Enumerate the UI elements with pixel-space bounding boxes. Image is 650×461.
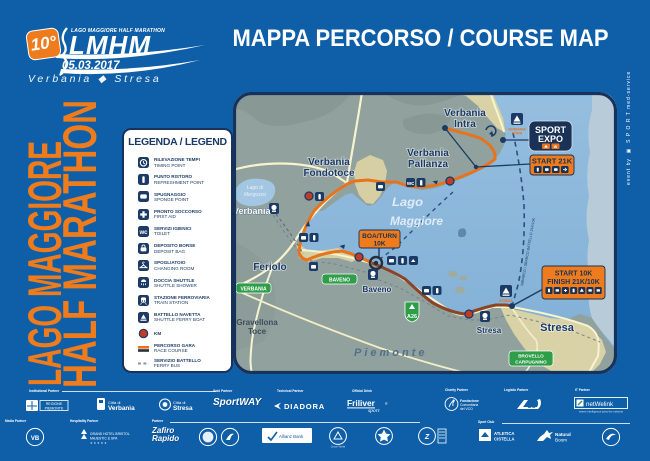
svg-text:START 10K: START 10K — [555, 271, 593, 278]
svg-text:GRAND HOTEL BRISTOL: GRAND HOTEL BRISTOL — [90, 432, 130, 436]
svg-text:Stresa: Stresa — [540, 322, 575, 334]
svg-text:FINISH 21K/10K: FINISH 21K/10K — [547, 279, 600, 286]
svg-text:del VCO: del VCO — [460, 407, 473, 411]
svg-text:Stresa: Stresa — [477, 326, 502, 335]
svg-text:LC: LC — [528, 404, 537, 410]
svg-text:ATLETICA: ATLETICA — [494, 431, 514, 436]
svg-text:Maggiore: Maggiore — [390, 214, 443, 228]
svg-text:★ ★ ★ ★ ★: ★ ★ ★ ★ ★ — [90, 441, 107, 445]
svg-text:Fondotoce: Fondotoce — [303, 168, 355, 179]
svg-text:Toce: Toce — [248, 327, 267, 336]
svg-text:wc: wc — [138, 230, 148, 236]
svg-text:HALF MARATHON: HALF MARATHON — [53, 100, 106, 388]
svg-text:Verbania: Verbania — [233, 206, 272, 216]
svg-text:Z: Z — [424, 434, 430, 441]
svg-text:MAJESTIC & SPA: MAJESTIC & SPA — [90, 437, 118, 441]
svg-text:Gravellona: Gravellona — [236, 318, 278, 327]
svg-text:W: W — [554, 145, 558, 149]
svg-text:Verbania: Verbania — [108, 405, 135, 412]
svg-text:BOA/TURN: BOA/TURN — [362, 233, 397, 240]
svg-text:wc: wc — [406, 181, 414, 187]
svg-text:Natural: Natural — [555, 432, 571, 437]
svg-text:Friliver: Friliver — [347, 398, 376, 408]
svg-text:A26: A26 — [407, 314, 417, 320]
svg-text:sport: sport — [368, 408, 380, 413]
svg-text:Verbania: Verbania — [407, 148, 449, 159]
svg-text:START 21K: START 21K — [532, 157, 573, 166]
svg-text:PIEMONTE: PIEMONTE — [45, 407, 64, 411]
svg-text:DIADORA: DIADORA — [284, 402, 325, 411]
svg-text:Piemonte: Piemonte — [354, 347, 428, 359]
svg-text:Croce Verde: Croce Verde — [331, 444, 346, 448]
svg-text:Verbania: Verbania — [444, 108, 486, 119]
svg-text:netWelink: netWelink — [586, 401, 614, 408]
svg-text:Baveno: Baveno — [363, 285, 392, 294]
svg-text:Lago di: Lago di — [247, 185, 264, 191]
svg-text:Mergozzo: Mergozzo — [244, 192, 266, 198]
svg-text:Boom: Boom — [555, 438, 567, 443]
svg-text:INTRA: INTRA — [512, 132, 523, 136]
svg-text:CISTELLA: CISTELLA — [494, 437, 514, 442]
svg-text:BROVELLO: BROVELLO — [518, 354, 544, 359]
svg-text:EXPO: EXPO — [538, 134, 563, 144]
svg-text:Intra: Intra — [454, 119, 476, 130]
svg-text:10K: 10K — [373, 241, 385, 248]
svg-text:REGIONE: REGIONE — [46, 402, 63, 406]
svg-text:VERBANIA: VERBANIA — [240, 286, 267, 292]
svg-text:Verbania: Verbania — [308, 157, 350, 168]
svg-text:Lago: Lago — [392, 195, 423, 209]
svg-text:Feriolo: Feriolo — [253, 262, 286, 273]
svg-text:®: ® — [385, 402, 388, 406]
svg-text:CARPUGNINO: CARPUGNINO — [515, 360, 547, 365]
svg-text:VB: VB — [31, 436, 40, 442]
svg-text:Pallanza: Pallanza — [408, 159, 448, 170]
svg-text:where intelligence joins the n: where intelligence joins the network — [579, 409, 624, 413]
svg-text:Stresa: Stresa — [173, 405, 193, 412]
svg-text:BAVENO: BAVENO — [329, 277, 350, 283]
svg-text:MAPPA PERCORSO / COURSE MAP: MAPPA PERCORSO / COURSE MAP — [233, 25, 609, 52]
svg-text:Allianz Bank: Allianz Bank — [279, 434, 304, 439]
svg-text:STRESA: STRESA — [499, 299, 513, 303]
